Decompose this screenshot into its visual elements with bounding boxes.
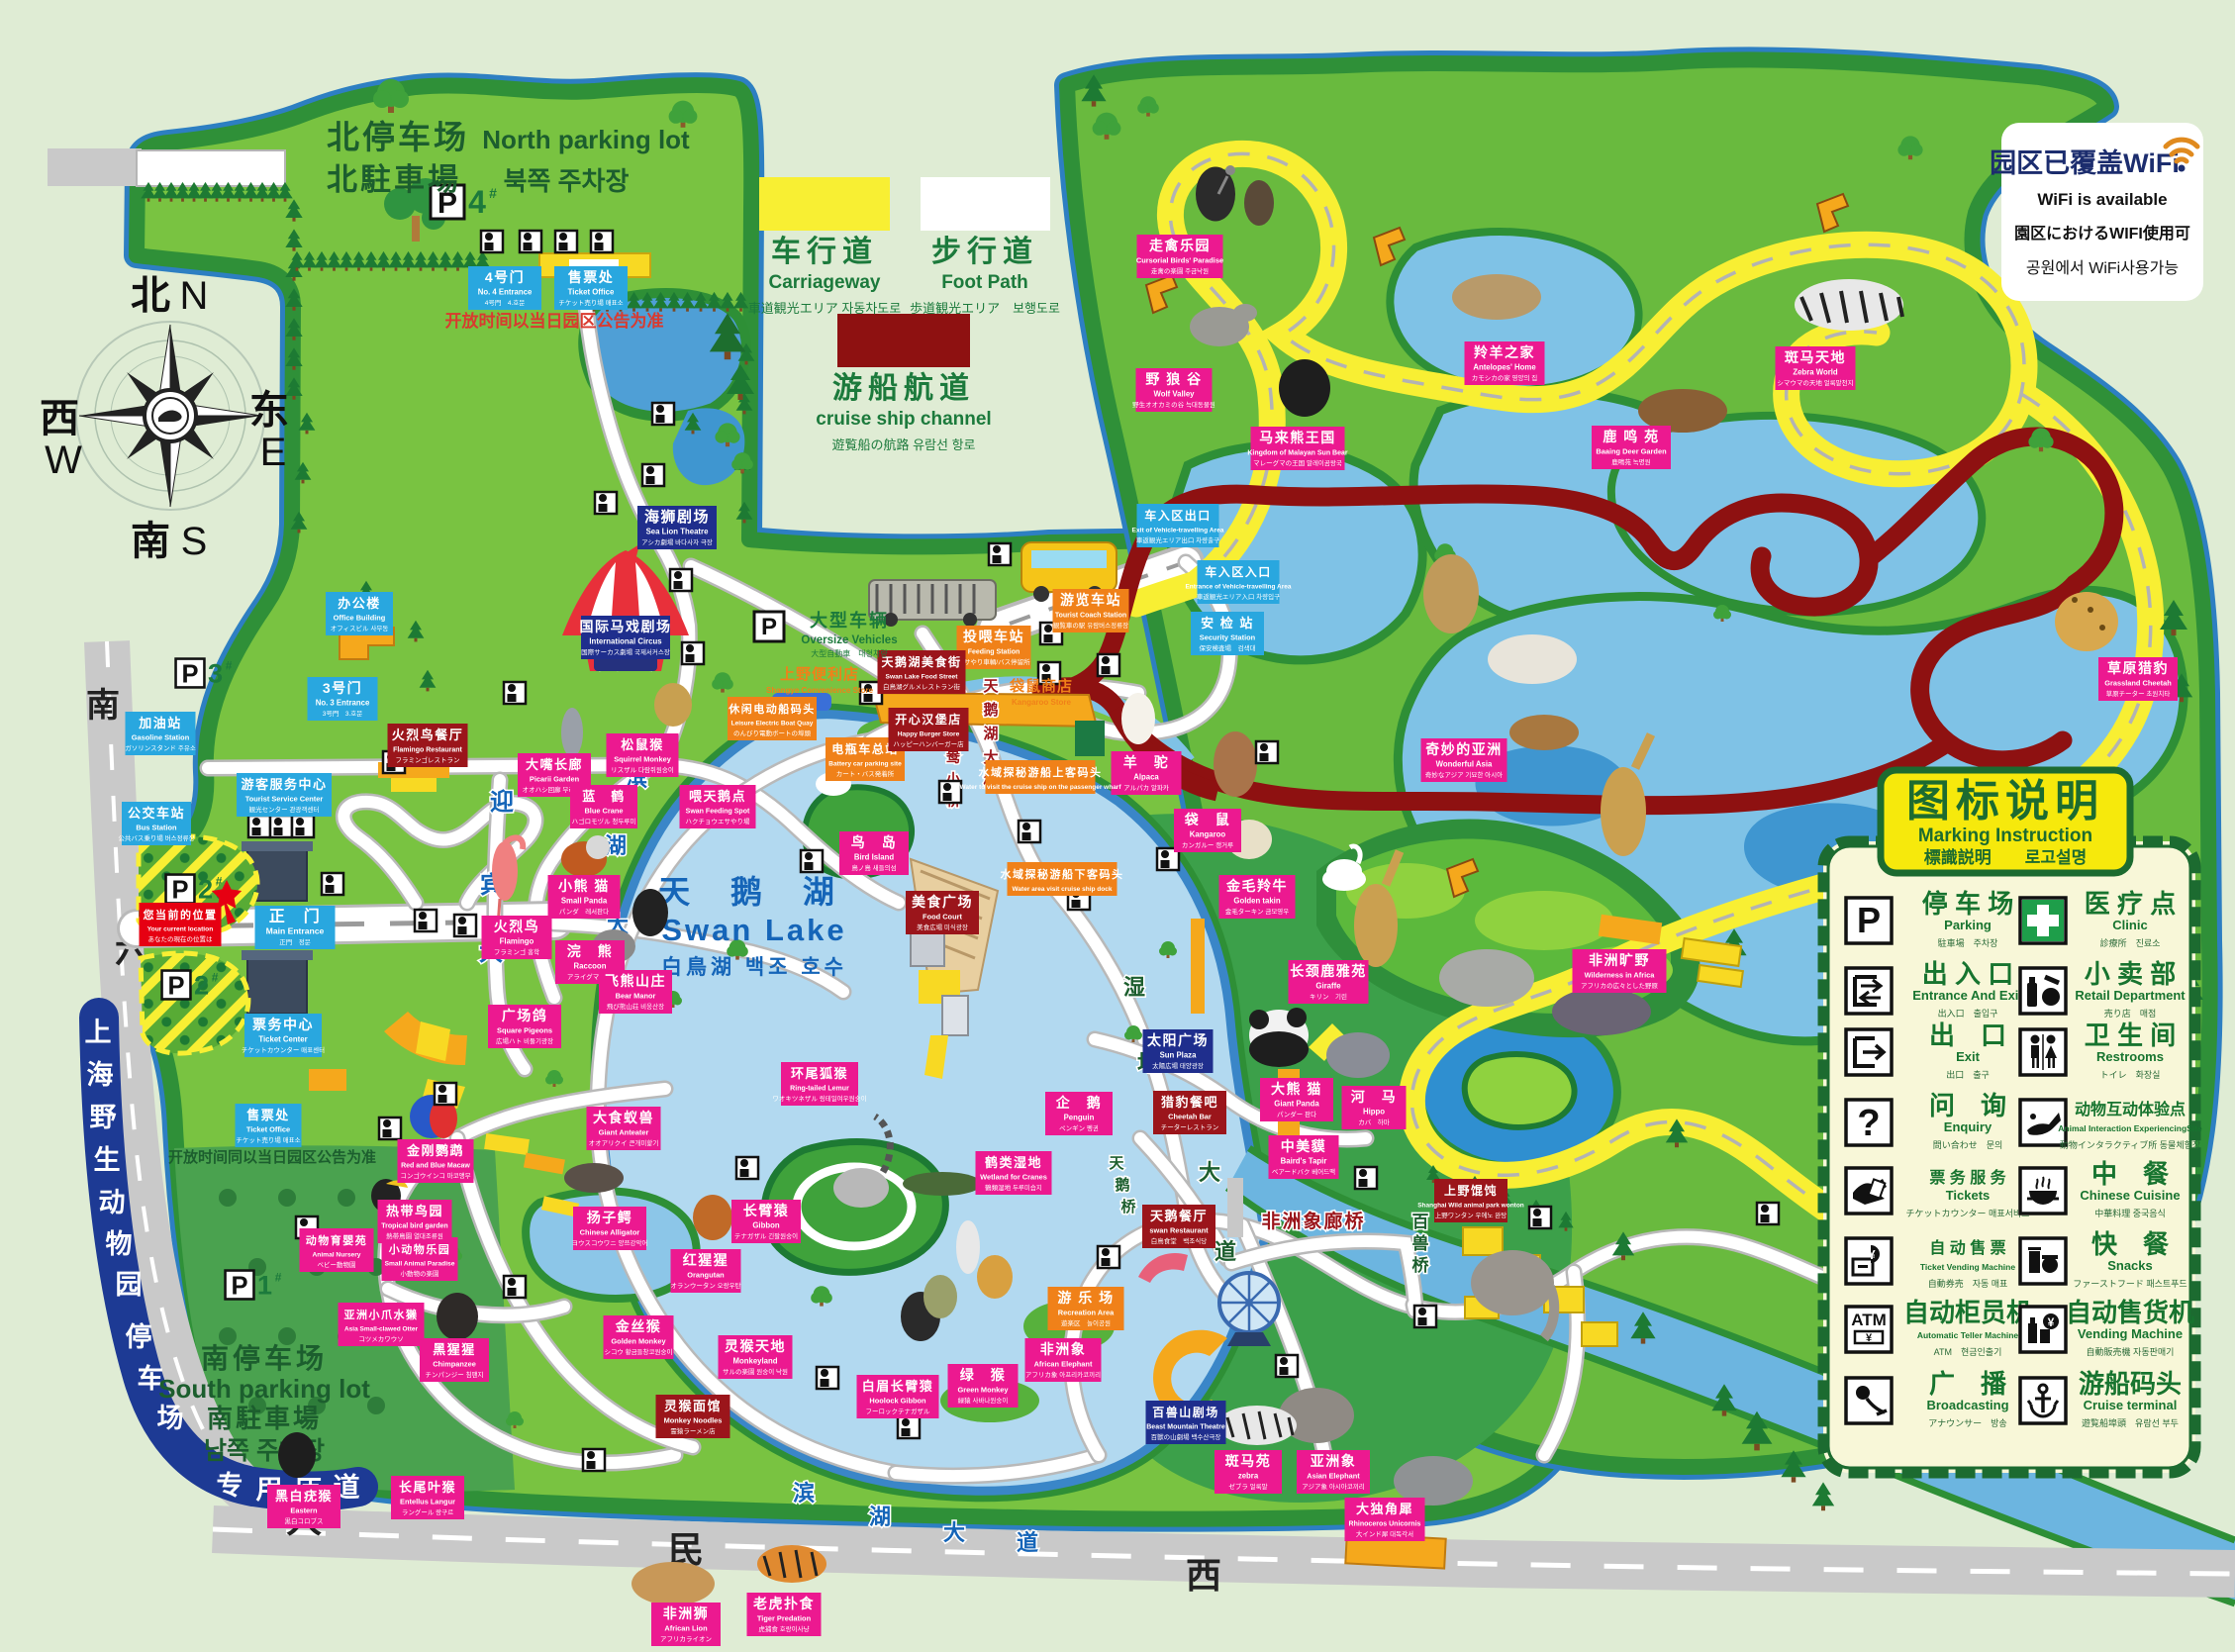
svg-text:上野馄饨: 上野馄饨 [1444,1183,1498,1198]
svg-text:亚洲小爪水獭: 亚洲小爪水獭 [344,1308,419,1321]
svg-text:Zebra World: Zebra World [1793,368,1838,377]
svg-text:Kingdom of Malayan Sun Bear: Kingdom of Malayan Sun Bear [1247,450,1348,457]
svg-text:Tropical bird garden: Tropical bird garden [381,1223,447,1230]
svg-text:动物育婴苑: 动物育婴苑 [306,1233,368,1247]
svg-text:車道観光エリア 자동차도로: 車道観光エリア 자동차도로 [748,301,901,316]
svg-text:Wonderful Asia: Wonderful Asia [1436,760,1493,769]
svg-text:环尾狐猴: 环尾狐猴 [791,1066,848,1081]
svg-text:Broadcasting: Broadcasting [1926,1398,2008,1412]
svg-text:白鳥湖 백조 호수: 白鳥湖 백조 호수 [661,955,847,979]
svg-text:Alpaca: Alpaca [1133,773,1159,782]
svg-text:Beast Mountain Theatre: Beast Mountain Theatre [1146,1424,1225,1431]
svg-text:太阳广场: 太阳广场 [1147,1032,1209,1048]
svg-text:Antelopes' Home: Antelopes' Home [1473,363,1536,372]
svg-text:动: 动 [99,1188,126,1217]
svg-text:正門 정문: 正門 정문 [279,937,310,946]
svg-text:Chimpanzee: Chimpanzee [433,1360,476,1369]
svg-text:のんびり電動ボートの埠頭: のんびり電動ボートの埠頭 [733,729,812,737]
svg-text:大嘴长廊: 大嘴长廊 [526,757,583,772]
svg-text:霊猿ラーメン店: 霊猿ラーメン店 [670,1426,716,1435]
svg-text:ATM: ATM [1851,1311,1887,1329]
svg-text:遊覧船埠頭 유람선 부두: 遊覧船埠頭 유람선 부두 [2082,1417,2179,1428]
svg-text:Ticket Office: Ticket Office [568,288,615,297]
svg-text:観光センター 관광객센터: 観光センター 관광객센터 [249,805,320,814]
svg-text:Golden Monkey: Golden Monkey [611,1337,666,1346]
svg-text:Giant Anteater: Giant Anteater [599,1128,649,1137]
svg-text:袋鼠商店: 袋鼠商店 [1009,677,1073,695]
svg-text:3号门: 3号门 [323,680,362,696]
svg-text:Entrance And Exit: Entrance And Exit [1912,988,2023,1003]
svg-text:图标说明: 图标说明 [1906,777,2104,826]
svg-text:大インド犀 대독각서: 大インド犀 대독각서 [1356,1529,1413,1538]
svg-text:长尾叶猴: 长尾叶猴 [399,1480,456,1495]
svg-text:Parking: Parking [1944,918,1992,932]
svg-text:P: P [231,1272,247,1300]
svg-text:灵猴面馆: 灵猴面馆 [664,1399,722,1413]
svg-text:广 播: 广 播 [1929,1369,2007,1399]
svg-text:自動販売機 자동판매기: 自動販売機 자동판매기 [2087,1346,2175,1357]
svg-text:车行道: 车行道 [771,235,878,268]
svg-text:P: P [167,972,184,1000]
svg-text:¥: ¥ [1868,1247,1876,1262]
svg-text:Raccoon: Raccoon [574,962,607,971]
svg-text:Snacks: Snacks [2107,1258,2153,1273]
svg-text:非洲象廊桥: 非洲象廊桥 [1261,1210,1365,1232]
svg-text:Giraffe: Giraffe [1315,982,1341,991]
svg-text:標識説明 로고설명: 標識説明 로고설명 [1924,847,2088,867]
svg-text:Your current location: Your current location [147,926,214,933]
svg-text:大: 大 [943,1520,965,1545]
svg-text:Cursorial Birds' Paradise: Cursorial Birds' Paradise [1136,256,1223,265]
svg-text:Gibbon: Gibbon [752,1221,780,1230]
svg-text:アルパカ 알파카: アルパカ 알파카 [1123,783,1169,792]
svg-text:桥: 桥 [1412,1256,1430,1275]
svg-text:Bird Island: Bird Island [854,853,895,862]
svg-text:野生オオカミの谷 늑대동물원: 野生オオカミの谷 늑대동물원 [1132,400,1215,409]
svg-text:Red and Blue Macaw: Red and Blue Macaw [401,1163,470,1170]
svg-text:Grassland Cheetah: Grassland Cheetah [2104,679,2172,688]
svg-text:Marking Instruction: Marking Instruction [1918,826,2092,846]
svg-text:フーロックテナガザル: フーロックテナガザル [866,1407,931,1415]
svg-text:自动柜员机: 自动柜员机 [1903,1298,2032,1327]
svg-text:迎: 迎 [490,788,514,816]
svg-text:Tourist Coach Station: Tourist Coach Station [1055,613,1126,620]
svg-text:ゼブラ 얼룩말: ゼブラ 얼룩말 [1228,1482,1267,1491]
svg-text:开心汉堡店: 开心汉堡店 [895,712,962,727]
svg-text:西: 西 [1186,1555,1221,1596]
svg-text:Tourist Service Center: Tourist Service Center [245,795,324,804]
svg-text:场: 场 [157,1404,184,1433]
svg-text:金毛羚牛: 金毛羚牛 [1225,878,1288,894]
svg-text:Green Monkey: Green Monkey [957,1386,1009,1395]
svg-text:ハッピーハンバーガー店: ハッピーハンバーガー店 [893,739,964,748]
svg-text:Foot Path: Foot Path [941,272,1028,293]
svg-text:斑马苑: 斑马苑 [1225,1453,1272,1469]
svg-text:自 动 售 票: 自 动 售 票 [1929,1238,2005,1257]
svg-text:Bus Station: Bus Station [136,824,177,832]
svg-text:火烈鸟: 火烈鸟 [494,919,540,934]
svg-text:猎豹餐吧: 猎豹餐吧 [1161,1095,1218,1110]
svg-text:WiFi is available: WiFi is available [2037,190,2167,209]
svg-text:Clinic: Clinic [2112,918,2147,932]
svg-text:走禽乐园: 走禽乐园 [1149,238,1211,253]
svg-text:チケット売り場 매표소: チケット売り場 매표소 [558,298,623,307]
svg-text:リスザル 다람쥐원숭이: リスザル 다람쥐원숭이 [611,765,674,774]
svg-text:上野ワンタン 우에노 완탕: 上野ワンタン 우에노 완탕 [1435,1211,1507,1219]
svg-text:#: # [489,185,497,201]
svg-text:海狮剧场: 海狮剧场 [644,508,710,526]
svg-text:草原チーター 초원치타: 草原チーター 초원치타 [2106,689,2171,698]
svg-text:Recreation Area: Recreation Area [1058,1309,1115,1317]
svg-text:美食広場 미식광장: 美食広場 미식광장 [917,923,968,931]
svg-text:Animal Nursery: Animal Nursery [313,1252,361,1259]
svg-text:出 入 口: 出 入 口 [1922,959,2013,989]
svg-text:黑猩猩: 黑猩猩 [433,1342,476,1357]
svg-text:西: 西 [40,397,79,440]
svg-text:Swan Feeding Spot: Swan Feeding Spot [686,809,750,816]
svg-text:北停车场: 北停车场 [327,119,469,155]
svg-text:Office Building: Office Building [334,614,386,623]
svg-text:Ticket Center: Ticket Center [258,1035,307,1044]
svg-text:老虎扑食: 老虎扑食 [753,1596,815,1611]
svg-text:チーターレストラン: チーターレストラン [1161,1122,1219,1131]
svg-text:マレーグマの王国 말레이곰왕국: マレーグマの王国 말레이곰왕국 [1253,458,1342,467]
svg-text:観覧車の駅 유람버스정류장: 観覧車の駅 유람버스정류장 [1053,621,1128,630]
svg-text:ATM 현금인출기: ATM 현금인출기 [1934,1347,2002,1357]
svg-text:コツメカワウソ: コツメカワウソ [358,1335,404,1343]
svg-text:桥: 桥 [1120,1198,1136,1215]
svg-text:投喂车站: 投喂车站 [963,629,1024,644]
svg-text:Kangaroo Store: Kangaroo Store [1012,698,1072,707]
svg-text:¥: ¥ [2048,1315,2055,1329]
svg-text:パンダー 판다: パンダー 판다 [1277,1110,1316,1118]
svg-text:大熊 猫: 大熊 猫 [1271,1081,1322,1097]
svg-text:Main Entrance: Main Entrance [266,926,325,936]
svg-text:红猩猩: 红猩猩 [683,1252,729,1268]
svg-text:2: 2 [194,969,209,1000]
svg-text:白鳥食堂 백조식당: 白鳥食堂 백조식당 [1151,1236,1207,1245]
svg-text:河 马: 河 马 [1351,1089,1398,1105]
svg-text:No. 3 Entrance: No. 3 Entrance [316,699,370,708]
svg-text:正 门: 正 门 [269,907,322,925]
svg-text:Giant Panda: Giant Panda [1274,1100,1319,1109]
svg-text:Entellus Langur: Entellus Langur [400,1498,455,1506]
svg-text:シコウ 황금들창코원숭이: シコウ 황금들창코원숭이 [605,1347,673,1356]
svg-text:停 车 场: 停 车 场 [1922,889,2013,919]
svg-text:歩道観光エリア 보행도로: 歩道観光エリア 보행도로 [910,301,1060,316]
svg-text:专: 专 [217,1471,243,1501]
svg-text:开放时间以当日园区公告为准: 开放时间以当日园区公告为准 [445,311,664,331]
svg-text:灵猴天地: 灵猴天地 [725,1338,786,1354]
svg-text:南: 南 [86,687,120,725]
svg-text:鹤类湿地: 鹤类湿地 [985,1155,1042,1170]
svg-text:熱帯鳥園 열대조류원: 熱帯鳥園 열대조류원 [386,1231,443,1240]
svg-text:上野便利店: 上野便利店 [780,665,859,683]
svg-text:¥: ¥ [1866,1332,1873,1344]
svg-text:公共バス乗り場 버스정류장: 公共バス乗り場 버스정류장 [118,833,194,842]
svg-text:出口 출구: 出口 출구 [1946,1069,1990,1080]
svg-text:鹿 鸣 苑: 鹿 鸣 苑 [1602,429,1659,444]
svg-text:问 询: 问 询 [1929,1091,2006,1120]
svg-text:国际马戏剧场: 国际马戏剧场 [580,619,672,634]
svg-text:草原猎豹: 草原猎豹 [2107,660,2169,676]
svg-text:Flamingo Restaurant: Flamingo Restaurant [393,747,462,754]
svg-text:Sun Plaza: Sun Plaza [1160,1051,1197,1060]
svg-text:売り店 매점: 売り店 매점 [2104,1008,2157,1019]
svg-text:大独角犀: 大独角犀 [1356,1502,1413,1516]
svg-text:車返観光エリア出口 차량출구: 車返観光エリア出口 차량출구 [1136,535,1219,544]
svg-text:道: 道 [1215,1239,1236,1264]
svg-text:天鹅湖美食街: 天鹅湖美食街 [881,654,961,669]
svg-text:奇妙なアジア 기묘한 아시아: 奇妙なアジア 기묘한 아시아 [1425,770,1503,779]
svg-text:アジア象 아시아코끼리: アジア象 아시아코끼리 [1302,1482,1364,1491]
svg-text:園区におけるWIFI使用可: 園区におけるWIFI使用可 [2014,224,2190,243]
svg-text:奇妙的亚洲: 奇妙的亚洲 [1425,741,1503,757]
svg-text:羚羊之家: 羚羊之家 [1474,344,1535,360]
svg-text:遊楽区 놀이공원: 遊楽区 놀이공원 [1061,1318,1111,1327]
svg-text:Shangye Convenience Store: Shangye Convenience Store [766,686,874,695]
svg-text:ベアードバク 베어드맥: ベアードバク 베어드맥 [1272,1167,1335,1176]
svg-text:百兽山剧场: 百兽山剧场 [1152,1405,1219,1419]
svg-text:南駐車場: 南駐車場 [207,1404,322,1433]
svg-text:オオアリクイ 큰개미핥기: オオアリクイ 큰개미핥기 [589,1138,659,1147]
svg-text:アナウンサー 방송: アナウンサー 방송 [1928,1418,2006,1428]
svg-text:Bear Manor: Bear Manor [616,992,656,1001]
svg-text:問い合わせ 문의: 問い合わせ 문의 [1933,1139,2003,1150]
svg-text:Hoolock Gibbon: Hoolock Gibbon [869,1397,926,1406]
svg-text:Food Court: Food Court [923,913,962,922]
svg-text:小熊 猫: 小熊 猫 [558,878,610,894]
svg-text:Sea Lion Theatre: Sea Lion Theatre [646,528,709,536]
svg-text:テナガザル 긴팔원숭이: テナガザル 긴팔원숭이 [734,1231,798,1240]
svg-text:공원에서 WiFi사용가능: 공원에서 WiFi사용가능 [2026,259,2179,277]
svg-text:美食广场: 美食广场 [912,894,973,910]
svg-text:チケットカウンター 매표서비스: チケットカウンター 매표서비스 [1906,1209,2030,1218]
svg-text:北: 北 [131,274,170,318]
svg-text:動物インタラクティブ所 동물체험장: 動物インタラクティブ所 동물체험장 [2060,1139,2200,1150]
svg-text:羊 驼: 羊 驼 [1123,754,1170,770]
svg-text:上: 上 [85,1018,112,1047]
svg-text:游船码头: 游船码头 [2079,1369,2182,1399]
svg-text:フラミンゴ 홍학: フラミンゴ 홍학 [494,947,539,956]
svg-text:4号门: 4号门 [485,269,525,285]
svg-text:Penguin: Penguin [1064,1114,1095,1122]
svg-text:小動物の楽園: 小動物の楽園 [401,1269,439,1278]
svg-text:Chinese Cuisine: Chinese Cuisine [2080,1188,2180,1203]
svg-text:#: # [275,1271,282,1285]
svg-text:天鹅餐厅: 天鹅餐厅 [1150,1209,1208,1223]
svg-text:車返観光エリア入口 차량입구: 車返観光エリア入口 차량입구 [1197,592,1280,601]
svg-text:P: P [1857,900,1881,940]
svg-text:野: 野 [90,1103,117,1132]
svg-text:オフィスビル 사무동: オフィスビル 사무동 [331,624,389,632]
svg-text:E: E [260,431,287,474]
svg-text:大: 大 [1199,1160,1220,1185]
svg-text:3: 3 [208,657,223,688]
svg-text:フラミンゴレストラン: フラミンゴレストラン [396,755,460,764]
svg-text:车入区入口: 车入区入口 [1205,564,1272,579]
svg-text:Baaing Deer Garden: Baaing Deer Garden [1596,447,1667,456]
svg-text:2: 2 [198,873,213,904]
svg-text:天: 天 [983,678,999,695]
svg-text:物: 物 [106,1229,133,1259]
svg-text:広場ハト 비둘기광장: 広場ハト 비둘기광장 [496,1036,553,1045]
svg-text:安 检 站: 安 检 站 [1201,616,1254,631]
svg-text:湖: 湖 [869,1505,891,1529]
svg-text:虎捕食 호랑이사냥: 虎捕食 호랑이사냥 [758,1624,809,1633]
svg-text:Squirrel Monkey: Squirrel Monkey [614,755,672,764]
svg-text:小动物乐园: 小动物乐园 [388,1242,451,1256]
svg-text:兽: 兽 [1412,1233,1429,1253]
svg-text:Small Animal Paradise: Small Animal Paradise [385,1261,455,1268]
svg-text:游览车站: 游览车站 [1060,592,1121,608]
svg-text:快 餐: 快 餐 [2091,1229,2170,1259]
svg-text:ヨウスコウワニ 양쯔강악어: ヨウスコウワニ 양쯔강악어 [572,1238,648,1247]
svg-text:步行道: 步行道 [931,236,1038,268]
svg-text:ラングール 랑구르: ラングール 랑구르 [402,1507,453,1516]
svg-text:Enquiry: Enquiry [1944,1119,1992,1134]
svg-text:Happy Burger Store: Happy Burger Store [898,731,960,738]
svg-text:办公楼: 办公楼 [338,596,381,611]
svg-text:Hippo: Hippo [1363,1108,1385,1117]
svg-text:票务中心: 票务中心 [252,1017,314,1032]
svg-text:您当前的位置: 您当前的位置 [144,908,218,922]
svg-text:开放时间同以当日园区公告为准: 开放时间同以当日园区公告为准 [168,1148,376,1166]
svg-text:Exit: Exit [1956,1049,1981,1064]
svg-text:Rhinoceros Unicornis: Rhinoceros Unicornis [1349,1521,1421,1528]
svg-text:水域探秘游船下客码头: 水域探秘游船下客码头 [1001,867,1124,881]
svg-text:喂天鹅点: 喂天鹅点 [689,789,746,804]
svg-text:アフリカライオン: アフリカライオン [660,1635,712,1643]
svg-text:Exit of Vehicle-travelling Are: Exit of Vehicle-travelling Area [1132,528,1224,534]
svg-text:游 乐 场: 游 乐 场 [1057,1290,1114,1306]
svg-text:百獣の山劇場 백수산극장: 百獣の山劇場 백수산극장 [1151,1432,1221,1441]
svg-text:チケット売り場 매표소: チケット売り場 매표소 [236,1135,300,1144]
svg-text:马来熊王国: 马来熊王国 [1259,430,1336,445]
svg-text:Asian Elephant: Asian Elephant [1307,1472,1360,1481]
svg-text:Flamingo: Flamingo [500,937,534,946]
svg-text:4号門 4.호문: 4号門 4.호문 [485,299,526,307]
svg-text:野 狼 谷: 野 狼 谷 [1145,371,1202,387]
svg-text:松鼠猴: 松鼠猴 [621,737,664,752]
svg-text:Tickets: Tickets [1946,1188,1991,1203]
svg-text:生: 生 [94,1145,121,1175]
svg-text:N: N [180,274,209,318]
svg-text:鳥ノ島 새들의섬: 鳥ノ島 새들의섬 [851,863,896,872]
svg-text:Baird's Tapir: Baird's Tapir [1281,1157,1327,1166]
svg-text:大食蚁兽: 大食蚁兽 [593,1110,654,1125]
svg-text:扬子鳄: 扬子鳄 [587,1210,633,1225]
svg-text:亚洲象: 亚洲象 [1311,1453,1357,1469]
svg-text:Ring-tailed Lemur: Ring-tailed Lemur [790,1086,849,1093]
svg-text:Eastern: Eastern [290,1506,318,1515]
svg-text:アフリカ象 아프리카코끼리: アフリカ象 아프리카코끼리 [1025,1370,1101,1379]
svg-text:游客服务中心: 游客服务中心 [241,777,327,792]
svg-text:白鳥湖グルメレストラン街: 白鳥湖グルメレストラン街 [883,682,961,691]
svg-text:鹿鳴苑 녹명원: 鹿鳴苑 녹명원 [1611,457,1650,466]
svg-text:Restrooms: Restrooms [2096,1049,2164,1064]
svg-text:鹅: 鹅 [983,701,998,719]
svg-text:自動券売 자동 매표: 自動券売 자동 매표 [1928,1278,2008,1289]
svg-text:1: 1 [257,1269,272,1300]
svg-text:大型车辆: 大型车辆 [810,610,889,631]
svg-text:チケットカウンター 매표센터: チケットカウンター 매표센터 [242,1045,325,1054]
svg-text:シマウマの天地 얼룩말천지: シマウマの天地 얼룩말천지 [1777,378,1853,387]
svg-text:售票处: 售票处 [567,269,615,285]
svg-text:天: 天 [1109,1155,1124,1172]
svg-text:国際サーカス劇場 국제서커스장: 国際サーカス劇場 국제서커스장 [581,647,670,656]
svg-text:绿 猴: 绿 猴 [960,1367,1007,1383]
svg-text:International Circus: International Circus [589,637,662,646]
svg-text:カモシカの家 영양의 집: カモシカの家 영양의 집 [1472,373,1538,382]
svg-text:アフリカの広々とした野原: アフリカの広々とした野原 [1581,981,1659,990]
svg-text:P: P [171,876,188,904]
svg-text:ペンギン 펭귄: ペンギン 펭귄 [1059,1123,1099,1132]
svg-text:Battery car parking site: Battery car parking site [828,761,902,768]
svg-text:Cruise terminal: Cruise terminal [2084,1398,2178,1412]
svg-text:Water to visit the cruise ship: Water to visit the cruise ship on the pa… [959,784,1121,791]
svg-text:Ticket Vending Machine: Ticket Vending Machine [1920,1262,2015,1272]
svg-text:ファーストフード 패스트푸드: ファーストフード 패스트푸드 [2073,1279,2186,1289]
svg-text:#: # [226,659,233,673]
svg-text:非洲狮: 非洲狮 [663,1605,710,1621]
svg-text:Asia Small-clawed Otter: Asia Small-clawed Otter [344,1326,419,1333]
svg-text:Wolf Valley: Wolf Valley [1153,390,1195,399]
svg-text:#: # [216,875,223,889]
svg-text:African Elephant: African Elephant [1034,1360,1093,1369]
svg-text:Security Station: Security Station [1200,633,1256,642]
svg-text:No. 4 Entrance: No. 4 Entrance [478,288,533,297]
svg-text:ベビー動物園: ベビー動物園 [318,1260,356,1269]
svg-text:サルの楽園 원숭이 낙원: サルの楽園 원숭이 낙원 [723,1367,788,1376]
svg-text:Golden takin: Golden takin [1233,897,1280,906]
svg-text:金丝猴: 金丝猴 [615,1318,662,1334]
svg-text:鹅: 鹅 [1115,1176,1129,1194]
svg-text:キリン 기린: キリン 기린 [1310,992,1347,1001]
svg-text:湖: 湖 [983,726,998,742]
svg-text:广场鸽: 广场鸽 [502,1008,548,1023]
svg-text:卫 生 间: 卫 生 间 [2085,1020,2176,1050]
svg-text:Shanghai Wild animal park wont: Shanghai Wild animal park wonton [1417,1203,1524,1210]
svg-text:Orangutan: Orangutan [687,1271,725,1280]
svg-text:Leisure Electric Boat Quay: Leisure Electric Boat Quay [731,721,814,728]
svg-text:?: ? [1857,1103,1880,1144]
svg-text:Oversize Vehicles: Oversize Vehicles [801,634,897,646]
svg-text:中 餐: 中 餐 [2091,1159,2170,1189]
svg-text:鶴類湿地 두루미습지: 鶴類湿地 두루미습지 [985,1183,1042,1192]
svg-text:ハゴロモヅル 청두루미: ハゴロモヅル 청두루미 [572,817,636,826]
svg-text:カバ 하마: カバ 하마 [1358,1118,1389,1126]
svg-text:ガソリンスタンド 주유소: ガソリンスタンド 주유소 [125,743,196,752]
svg-text:中美貘: 中美貘 [1281,1138,1327,1154]
svg-text:エサやり車輌/バス停留所: エサやり車輌/バス停留所 [957,657,1030,666]
svg-text:鸟 岛: 鸟 岛 [851,834,898,850]
svg-text:加油站: 加油站 [138,716,182,730]
svg-text:袋 鼠: 袋 鼠 [1184,812,1231,827]
svg-text:出入口 출입구: 出入口 출입구 [1938,1008,1998,1019]
svg-text:白眉长臂猿: 白眉长臂猿 [862,1379,934,1394]
svg-text:Gasoline Station: Gasoline Station [132,733,190,742]
svg-text:Entrance of Vehicle-travelling: Entrance of Vehicle-travelling Area [1185,584,1291,591]
svg-text:车入区出口: 车入区出口 [1144,508,1212,523]
svg-text:南停车场: 南停车场 [201,1342,328,1374]
svg-text:中華料理 중국음식: 中華料理 중국음식 [2094,1208,2166,1218]
svg-text:ワオキツネザル 링테일여우원숭이: ワオキツネザル 링테일여우원숭이 [772,1094,866,1103]
svg-text:园区已覆盖WiFi: 园区已覆盖WiFi [1990,148,2180,178]
svg-text:Swan Lake: Swan Lake [661,913,846,947]
svg-text:診療所 진료소: 診療所 진료소 [2100,937,2161,948]
svg-text:海: 海 [87,1060,114,1090]
